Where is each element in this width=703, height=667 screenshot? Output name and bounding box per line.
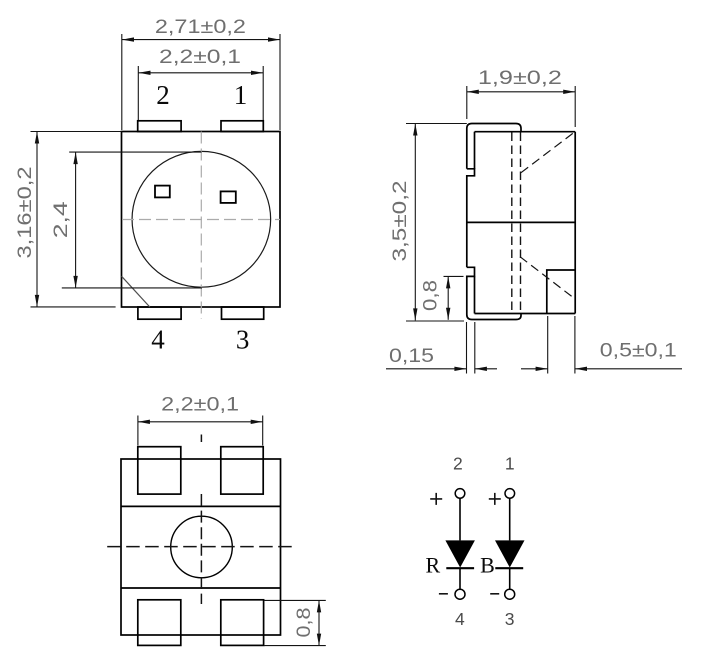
svg-text:0,15: 0,15 [389,345,434,367]
svg-text:4: 4 [151,325,165,355]
svg-text:1: 1 [234,80,248,110]
svg-text:R: R [425,553,440,578]
svg-text:2,4: 2,4 [50,201,72,238]
svg-text:0,8: 0,8 [293,608,315,638]
svg-text:4: 4 [455,609,465,629]
svg-text:3: 3 [236,325,250,355]
svg-text:2,71±0,2: 2,71±0,2 [155,16,246,38]
svg-text:B: B [480,553,495,578]
svg-text:0,8: 0,8 [420,280,442,311]
svg-text:3,16±0,2: 3,16±0,2 [14,167,36,259]
svg-text:1: 1 [505,454,515,474]
svg-text:3,5±0,2: 3,5±0,2 [389,181,411,262]
svg-text:3: 3 [505,609,515,629]
svg-text:1,9±0,2: 1,9±0,2 [478,67,562,89]
svg-text:2,2±0,1: 2,2±0,1 [161,394,239,416]
svg-text:0,5±0,1: 0,5±0,1 [600,340,677,362]
svg-text:2: 2 [156,80,170,110]
svg-text:2: 2 [453,454,463,474]
svg-text:2,2±0,1: 2,2±0,1 [159,46,241,68]
